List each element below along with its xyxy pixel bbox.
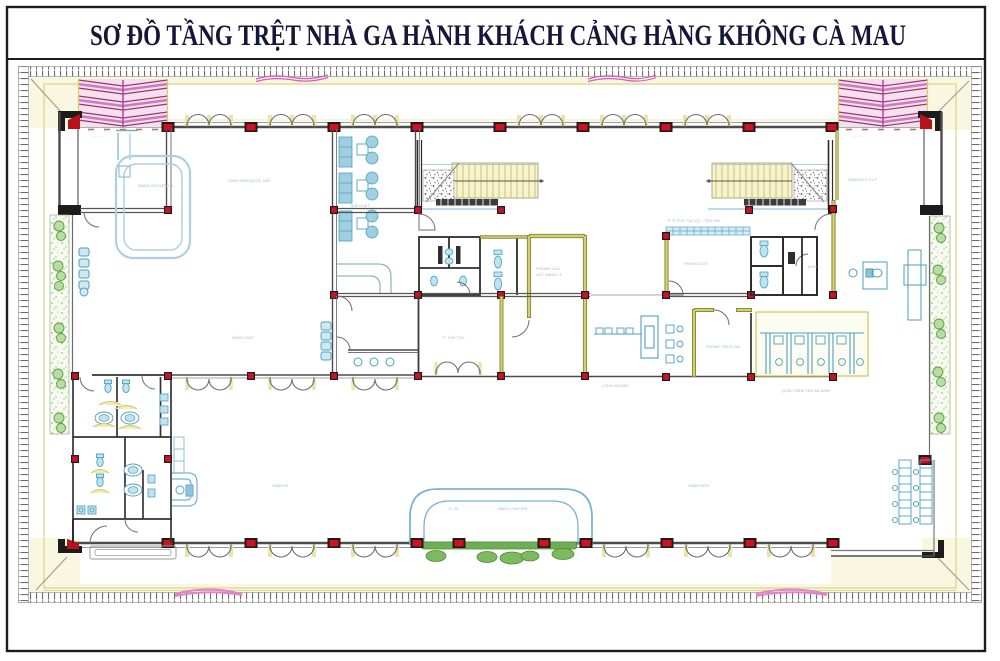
svg-text:SẢNH ĐI: SẢNH ĐI [272, 483, 288, 488]
svg-text:PHÒNG TRỰC AN: PHÒNG TRỰC AN [706, 344, 740, 349]
svg-text:SẢNH ĐỢI V.I.P: SẢNH ĐỢI V.I.P [848, 177, 877, 182]
svg-text:SẢNH ĐẾN QUỐC NỘI: SẢNH ĐẾN QUỐC NỘI [228, 178, 270, 183]
svg-text:SƠ ĐỒ TẦNG TRỆT NHÀ GA HÀNH KH: SƠ ĐỒ TẦNG TRỆT NHÀ GA HÀNH KHÁCH CẢNG H… [90, 18, 906, 52]
svg-text:LỐI ĐI NỘI BỘ: LỐI ĐI NỘI BỘ [602, 383, 629, 388]
svg-text:KHO: KHO [808, 264, 817, 269]
svg-text:TL 05: TL 05 [448, 506, 459, 511]
svg-text:GIỮ HÀNH LÝ: GIỮ HÀNH LÝ [536, 272, 562, 277]
svg-text:SẢNH CHỜ: SẢNH CHỜ [232, 335, 254, 340]
svg-text:SẢNH ĐẾN: SẢNH ĐẾN [688, 483, 709, 488]
svg-text:PHÒNG ĐỢI: PHÒNG ĐỢI [684, 261, 707, 266]
svg-text:◦ ◦ ◦ ◦ ◦: ◦ ◦ ◦ ◦ ◦ [92, 134, 104, 139]
svg-text:PHÒNG LƯU: PHÒNG LƯU [536, 266, 560, 271]
svg-text:◦ ◦ ◦ ◦ ◦: ◦ ◦ ◦ ◦ ◦ [852, 134, 864, 139]
svg-text:BĂNG CHUYỀN HL: BĂNG CHUYỀN HL [138, 183, 174, 188]
svg-text:GIẢI KHÁT: GIẢI KHÁT [350, 203, 370, 208]
svg-text:BĂNG CHUYỀN: BĂNG CHUYỀN [498, 506, 527, 511]
svg-text:P. Ô THỦ TỤC QT - TKB HẬT: P. Ô THỦ TỤC QT - TKB HẬT [668, 218, 722, 223]
svg-text:P. THỦ TỤC: P. THỦ TỤC [443, 335, 465, 340]
svg-text:QUẦY KIỂM TRA AN NINH: QUẦY KIỂM TRA AN NINH [782, 388, 830, 393]
